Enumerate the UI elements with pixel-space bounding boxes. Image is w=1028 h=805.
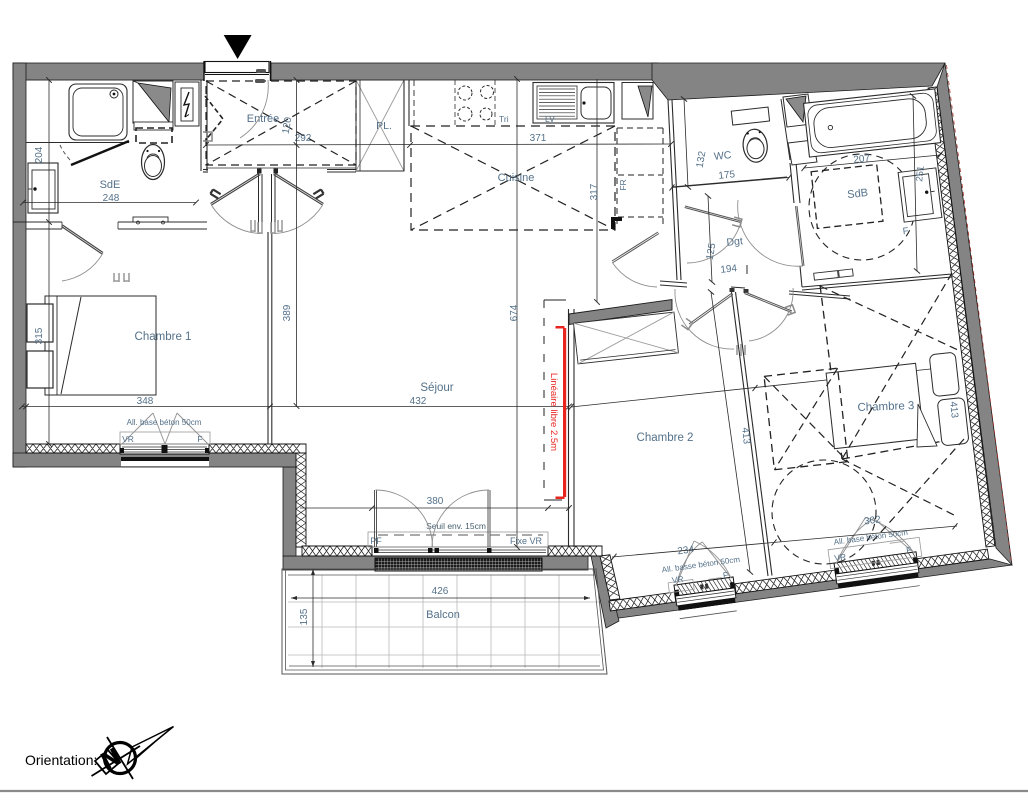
svg-text:LV: LV — [545, 114, 555, 124]
svg-text:292: 292 — [295, 133, 312, 144]
svg-text:Orientation:: Orientation: — [25, 752, 97, 768]
svg-text:380: 380 — [427, 496, 444, 507]
svg-text:VR: VR — [671, 574, 684, 586]
svg-text:194: 194 — [720, 263, 738, 276]
svg-text:F: F — [197, 434, 202, 444]
svg-text:Chambre 3: Chambre 3 — [857, 400, 914, 414]
svg-text:135: 135 — [299, 608, 310, 625]
svg-text:Séjour: Séjour — [420, 382, 453, 394]
svg-text:317: 317 — [589, 183, 600, 200]
svg-text:Entrée: Entrée — [247, 113, 279, 125]
svg-text:207: 207 — [853, 153, 871, 166]
svg-text:VR: VR — [122, 434, 134, 444]
svg-text:SdB: SdB — [847, 187, 869, 201]
svg-text:SdE: SdE — [100, 179, 121, 191]
svg-text:Balcon: Balcon — [426, 609, 460, 621]
svg-text:WC: WC — [713, 149, 732, 163]
svg-text:674: 674 — [509, 304, 520, 321]
svg-text:PL.: PL. — [376, 120, 392, 132]
svg-text:Chambre 1: Chambre 1 — [135, 331, 192, 343]
svg-text:371: 371 — [530, 133, 547, 144]
svg-text:348: 348 — [137, 396, 154, 407]
svg-text:432: 432 — [410, 396, 427, 407]
svg-text:302: 302 — [864, 514, 882, 527]
svg-text:FR: FR — [618, 179, 628, 190]
svg-text:Dgt: Dgt — [726, 235, 744, 249]
svg-text:251: 251 — [914, 165, 927, 182]
svg-text:204: 204 — [34, 146, 45, 163]
svg-text:413: 413 — [947, 401, 960, 419]
svg-text:Cuisine: Cuisine — [498, 172, 535, 184]
svg-text:All. base béton 50cm: All. base béton 50cm — [127, 418, 202, 427]
svg-text:175: 175 — [718, 169, 736, 182]
svg-text:413: 413 — [739, 427, 752, 445]
svg-text:389: 389 — [282, 304, 293, 321]
svg-text:426: 426 — [432, 586, 449, 597]
svg-text:Tri: Tri — [499, 114, 509, 124]
svg-text:Chambre 2: Chambre 2 — [637, 432, 694, 444]
svg-text:315: 315 — [34, 327, 45, 344]
svg-text:Linéaire libre 2.5m: Linéaire libre 2.5m — [548, 373, 559, 451]
